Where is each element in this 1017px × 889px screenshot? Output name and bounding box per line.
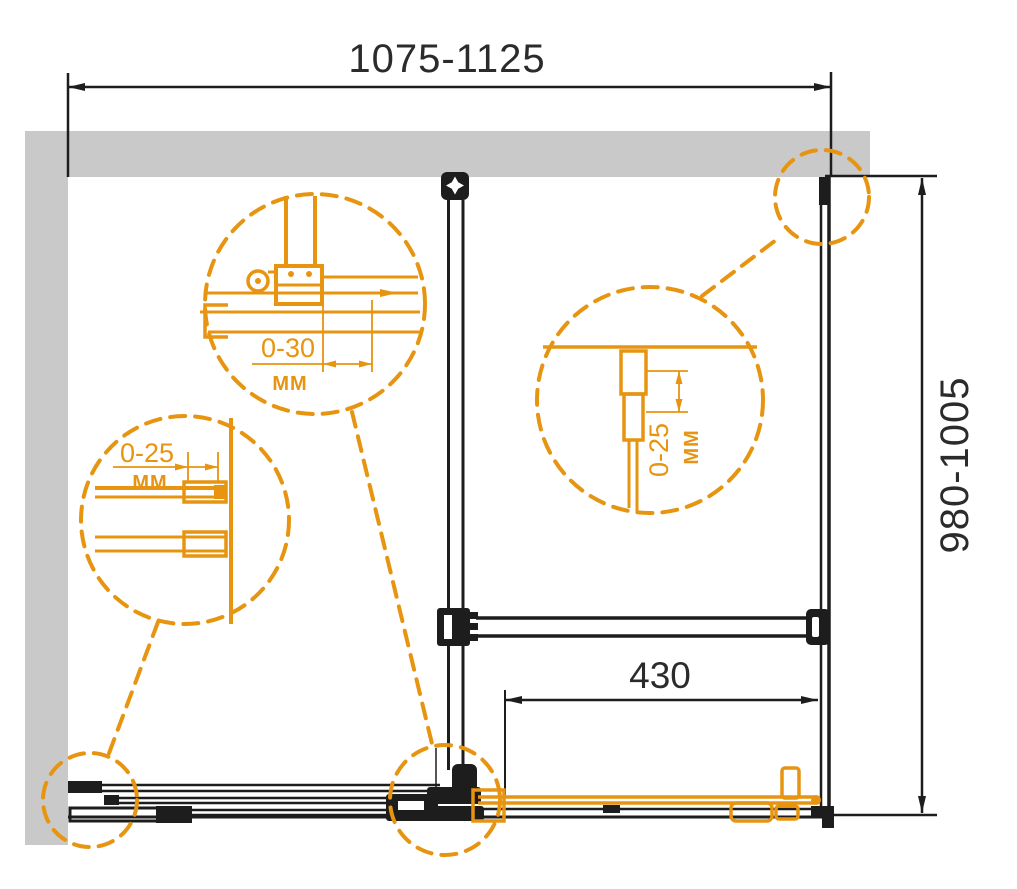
dimension-depth: 980-1005 [825,176,977,815]
door-track-assembly [68,748,833,823]
leader-leftmid-to-bottomleft [108,622,158,756]
top-profile [621,351,646,394]
leader-centerright-to-topright [702,240,776,296]
detail-circle-center-right [537,287,763,513]
dim-door-label: 430 [629,655,691,696]
detail-left-middle: 0-25 ММ [95,418,231,624]
wall-profile-right [811,177,834,828]
detail-0-30-value: 0-30 [261,333,315,363]
detail-0-25-left-unit: ММ [132,472,167,494]
detail-0-25-right-unit: ММ [681,429,703,464]
door-knob [603,805,620,813]
shower-enclosure-plan: 1075-1125 980-1005 430 [0,0,1017,889]
rear-panel-bracket [68,781,102,793]
detail-0-25-right-value: 0-25 [644,423,674,477]
technical-drawing-canvas: 1075-1125 980-1005 430 [0,0,1017,889]
detail-circle-left-middle [81,416,289,624]
left-door-block [156,806,192,823]
side-panel [441,172,469,770]
detail-0-30-unit: ММ [272,373,307,395]
highlighted-door [473,768,821,821]
dim-depth-label: 980-1005 [933,376,977,553]
dim-width-label: 1075-1125 [348,37,545,81]
detail-top-left: 0-30 ММ [200,196,420,395]
detail-0-25-left-value: 0-25 [120,438,174,468]
wall-top [25,131,870,177]
dimension-door: 430 [505,655,818,795]
leader-topleft-to-center [352,412,433,748]
door-handle [782,768,799,798]
wall-left [25,131,68,845]
stabilizer-bar [437,608,830,646]
